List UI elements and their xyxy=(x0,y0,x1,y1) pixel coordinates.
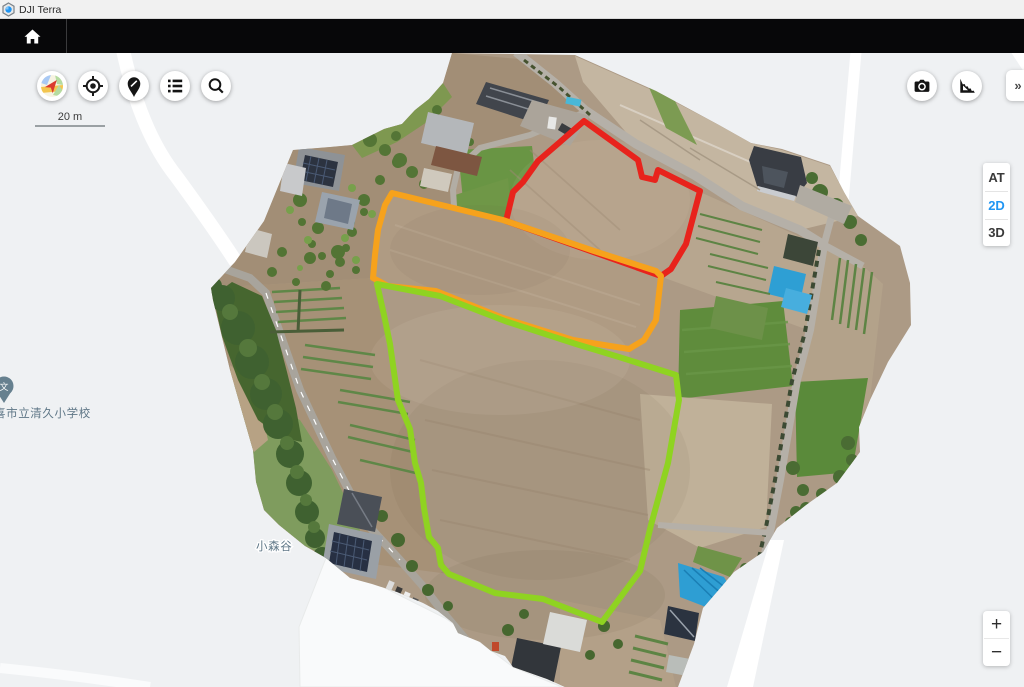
svg-text:喜市立清久小学校: 喜市立清久小学校 xyxy=(0,406,91,420)
svg-text:小森谷: 小森谷 xyxy=(256,539,292,553)
svg-text:文: 文 xyxy=(0,381,9,392)
